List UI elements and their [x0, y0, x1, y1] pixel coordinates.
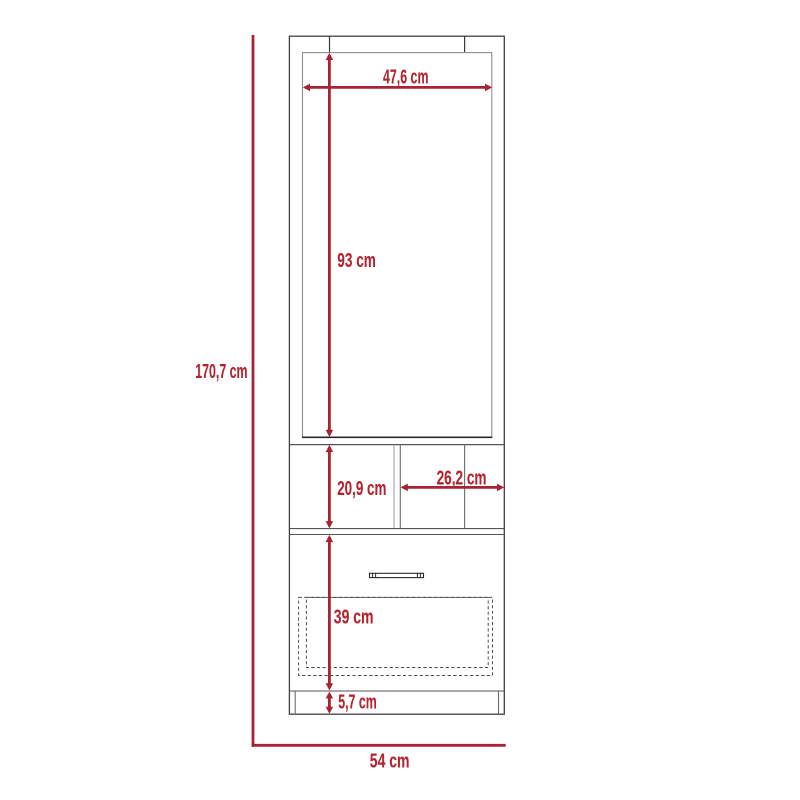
svg-text:54 cm: 54 cm	[370, 749, 410, 772]
svg-text:26,2 cm: 26,2 cm	[437, 467, 487, 489]
svg-text:47,6 cm: 47,6 cm	[383, 65, 428, 88]
svg-text:20,9 cm: 20,9 cm	[337, 477, 386, 499]
svg-text:5,7 cm: 5,7 cm	[338, 690, 377, 713]
svg-text:39 cm: 39 cm	[334, 605, 374, 628]
svg-text:93 cm: 93 cm	[337, 249, 376, 271]
svg-text:170,7 cm: 170,7 cm	[195, 360, 247, 383]
